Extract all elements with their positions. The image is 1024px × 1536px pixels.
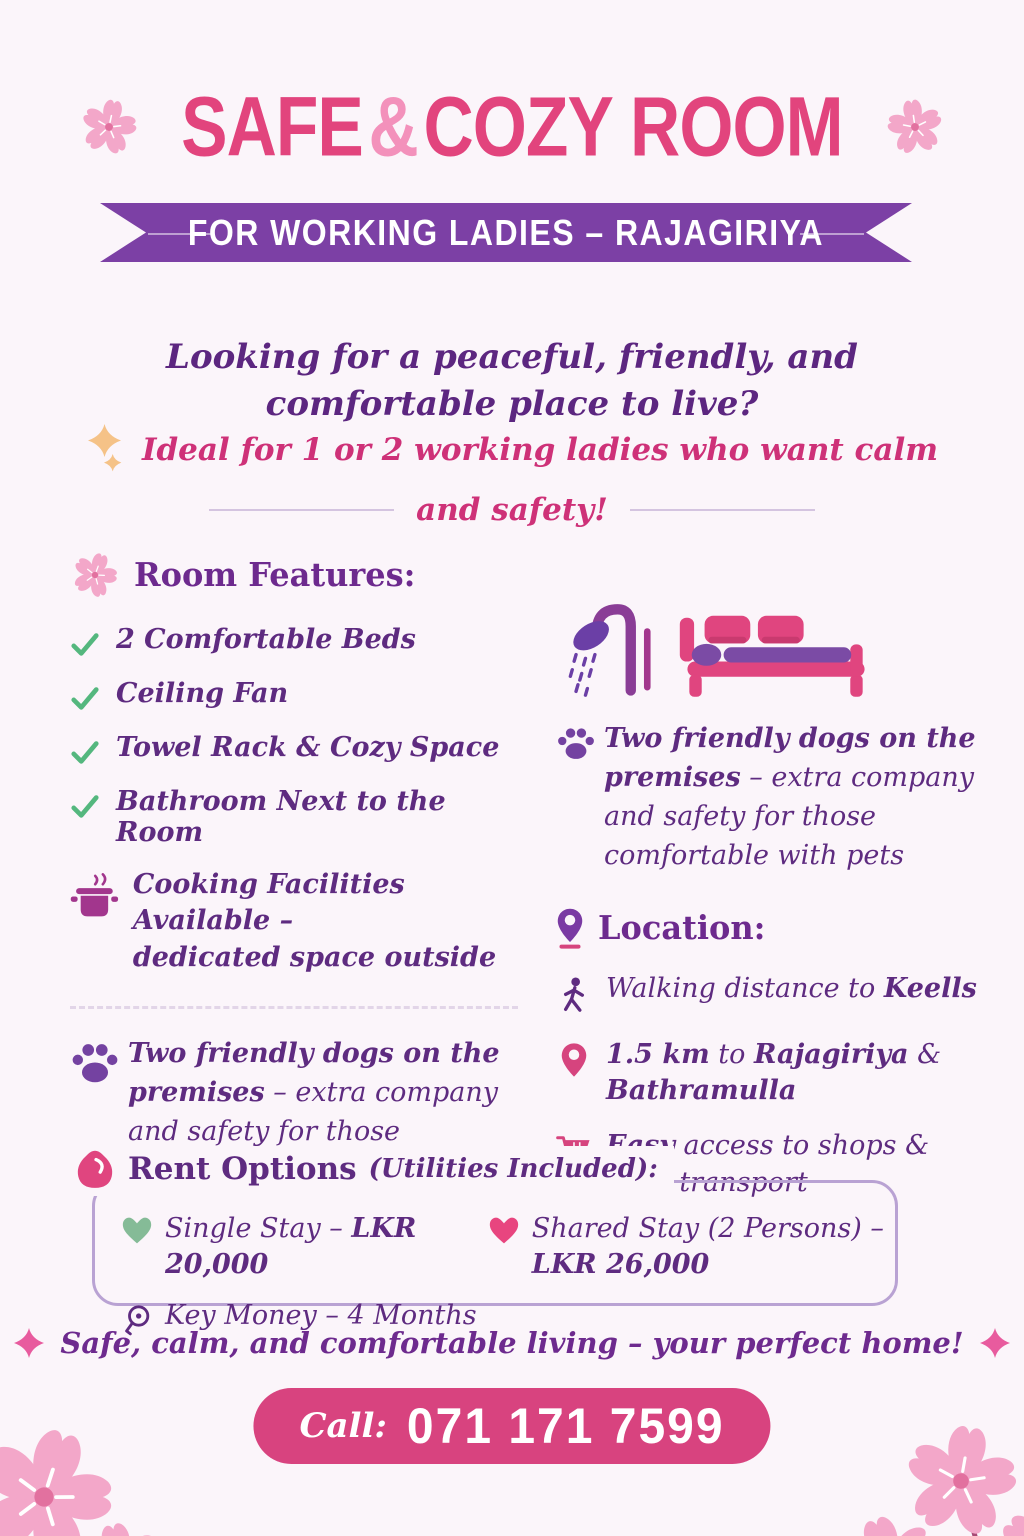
- page-title: SAFE&COZY ROOM: [181, 78, 843, 175]
- list-item: Ceiling Fan: [70, 678, 518, 713]
- cherry-blossom-icon: [70, 550, 120, 600]
- rent-options-heading: Rent Options (Utilities Included):: [74, 1146, 674, 1196]
- dashed-divider: [70, 1006, 518, 1009]
- heading-label: Location:: [598, 908, 765, 947]
- intro-question: Looking for a peaceful, friendly, and co…: [162, 334, 862, 428]
- cherry-blossom-icon: [884, 96, 946, 158]
- title-ampersand: &: [369, 79, 418, 174]
- amenity-icons: [560, 596, 980, 698]
- sparkle-icon: [86, 424, 132, 476]
- key-money-text: Key Money – 4 Months: [165, 1298, 477, 1334]
- money-bag-icon: [74, 1146, 116, 1192]
- divider-line: [630, 509, 815, 511]
- call-label: Call:: [299, 1406, 386, 1446]
- ideal-line1: Ideal for 1 or 2 working ladies who want…: [142, 432, 938, 468]
- cooking-line2: dedicated space outside: [133, 940, 518, 976]
- banner-text: FOR WORKING LADIES – RAJAGIRIYA: [188, 212, 824, 254]
- cooking-facilities-item: Cooking Facilities Available – dedicated…: [70, 867, 518, 976]
- cherry-blossom-icon: [78, 96, 140, 158]
- cooking-pot-icon: [70, 867, 119, 929]
- shower-icon: [560, 598, 660, 698]
- check-icon: [70, 629, 100, 659]
- location-item-walk: Walking distance to Keells: [556, 971, 980, 1018]
- single-stay-text: Single Stay – LKR 20,000: [165, 1211, 488, 1284]
- rent-options-box: Single Stay – LKR 20,000 Key Money – 4 M…: [92, 1180, 898, 1306]
- list-item: Bathroom Next to the Room: [70, 786, 518, 848]
- call-button[interactable]: Call: 071 171 7599: [253, 1388, 770, 1464]
- features-list: 2 Comfortable Beds Ceiling Fan Towel Rac…: [70, 624, 518, 848]
- pink-heart-icon: [488, 1215, 520, 1245]
- phone-number: 071 171 7599: [407, 1397, 725, 1455]
- divider-line: [209, 509, 394, 511]
- check-icon: [70, 737, 100, 767]
- cooking-text: Cooking Facilities Available – dedicated…: [133, 867, 518, 976]
- location-pin-icon: [556, 904, 584, 952]
- ideal-line2: and safety!: [416, 492, 608, 528]
- list-item: 2 Comfortable Beds: [70, 624, 518, 659]
- title-part2: COZY ROOM: [424, 79, 843, 174]
- walking-person-icon: [559, 974, 589, 1018]
- title-part1: SAFE: [181, 79, 363, 174]
- location-heading: Location:: [556, 904, 980, 952]
- rent-item-shared: Shared Stay (2 Persons) – LKR 26,000: [488, 1211, 885, 1284]
- corner-blossoms-right: [839, 1406, 1024, 1536]
- cooking-line1: Cooking Facilities Available –: [133, 867, 518, 940]
- key-icon: [122, 1302, 152, 1340]
- paw-icon: [70, 1040, 120, 1086]
- corner-blossoms-left: [0, 1419, 172, 1536]
- rent-heading-note: (Utilities Included):: [369, 1154, 658, 1184]
- map-pin-icon: [560, 1040, 588, 1080]
- banner-decor-line: [800, 233, 864, 235]
- sparkle-icon: [980, 1328, 1010, 1358]
- paw-icon: [556, 725, 596, 762]
- location-distance-text: 1.5 km to Rajagiriya & Bathramulla: [606, 1037, 980, 1110]
- rent-box-left: Single Stay – LKR 20,000 Key Money – 4 M…: [121, 1211, 488, 1340]
- shared-stay-text: Shared Stay (2 Persons) – LKR 26,000: [532, 1211, 885, 1284]
- sparkle-icon: [14, 1328, 44, 1358]
- list-item: Towel Rack & Cozy Space: [70, 732, 518, 767]
- rent-heading-main: Rent Options: [128, 1151, 357, 1187]
- rent-item-key-money: Key Money – 4 Months: [121, 1298, 488, 1340]
- header: SAFE&COZY ROOM: [0, 84, 1024, 169]
- bed-icon: [676, 606, 876, 698]
- check-icon: [70, 791, 100, 821]
- dogs-note: Two friendly dogs on the premises – extr…: [556, 720, 980, 876]
- check-icon: [70, 683, 100, 713]
- subtitle-banner: FOR WORKING LADIES – RAJAGIRIYA: [100, 203, 912, 262]
- rent-item-single: Single Stay – LKR 20,000: [121, 1211, 488, 1284]
- location-item-distance: 1.5 km to Rajagiriya & Bathramulla: [556, 1037, 980, 1110]
- ideal-callout: Ideal for 1 or 2 working ladies who want…: [0, 424, 1024, 528]
- right-column: Two friendly dogs on the premises – extr…: [556, 596, 980, 1201]
- rent-box-right: Shared Stay (2 Persons) – LKR 26,000: [488, 1211, 885, 1340]
- room-rental-flyer: SAFE&COZY ROOM FOR WORKING LADIES – RAJA…: [0, 0, 1024, 1536]
- green-heart-icon: [121, 1215, 153, 1245]
- room-features-heading: Room Features:: [70, 550, 518, 600]
- room-features-section: Room Features: 2 Comfortable Beds Ceilin…: [70, 550, 518, 1218]
- heading-label: Room Features:: [134, 556, 415, 595]
- location-walk-text: Walking distance to Keells: [606, 971, 977, 1007]
